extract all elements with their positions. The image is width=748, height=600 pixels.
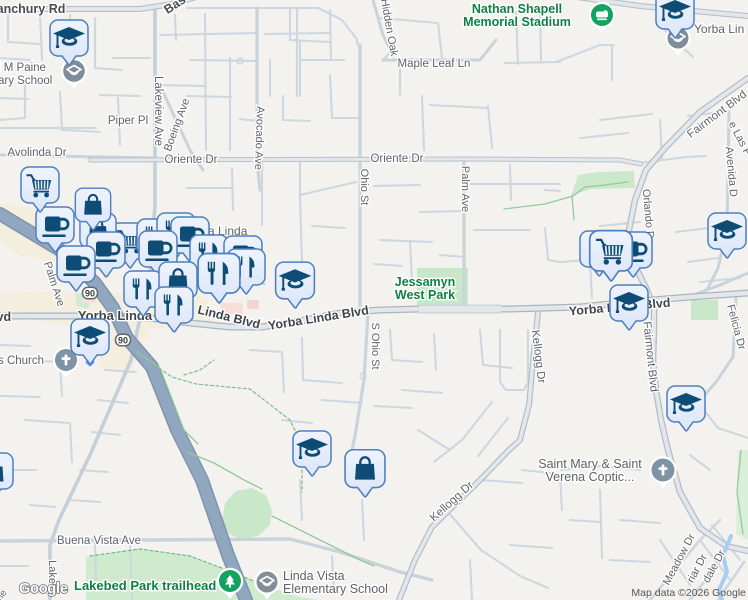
svg-text:Avolinda Dr: Avolinda Dr xyxy=(7,147,66,159)
svg-text:Palm Ave: Palm Ave xyxy=(459,166,471,212)
svg-text:Yorba Lin: Yorba Lin xyxy=(694,22,744,36)
svg-text:Ohio St: Ohio St xyxy=(358,169,370,206)
svg-text:Oriente Dr: Oriente Dr xyxy=(370,153,423,165)
svg-text:l M Paineary School: l M Paineary School xyxy=(0,62,52,87)
svg-text:Piper Pl: Piper Pl xyxy=(108,115,148,127)
svg-text:Nathan ShapellMemorial Stadium: Nathan ShapellMemorial Stadium xyxy=(463,2,571,29)
svg-text:S Ohio St: S Ohio St xyxy=(369,322,381,369)
svg-text:Oriente Dr: Oriente Dr xyxy=(164,154,217,166)
svg-text:Lakeview Ave: Lakeview Ave xyxy=(152,76,164,146)
svg-text:JessamynWest Park: JessamynWest Park xyxy=(395,275,455,302)
svg-text:Lakebed Park trailhead: Lakebed Park trailhead xyxy=(74,578,216,593)
svg-text:90: 90 xyxy=(85,288,95,298)
svg-text:anchury Rd: anchury Rd xyxy=(0,2,65,16)
svg-text:Avocado Ave: Avocado Ave xyxy=(252,106,266,170)
svg-text:Buena Vista Ave: Buena Vista Ave xyxy=(57,535,141,547)
svg-text:90: 90 xyxy=(118,335,128,345)
svg-text:Blvd: Blvd xyxy=(0,310,11,324)
svg-text:Maple Leaf Ln: Maple Leaf Ln xyxy=(398,58,471,70)
svg-text:Map data ©2026 Google: Map data ©2026 Google xyxy=(631,587,746,599)
svg-text:Google: Google xyxy=(19,581,68,597)
svg-text:s Church: s Church xyxy=(0,355,44,367)
svg-text:Saint Mary & SaintVerena Copti: Saint Mary & SaintVerena Coptic... xyxy=(538,457,642,484)
